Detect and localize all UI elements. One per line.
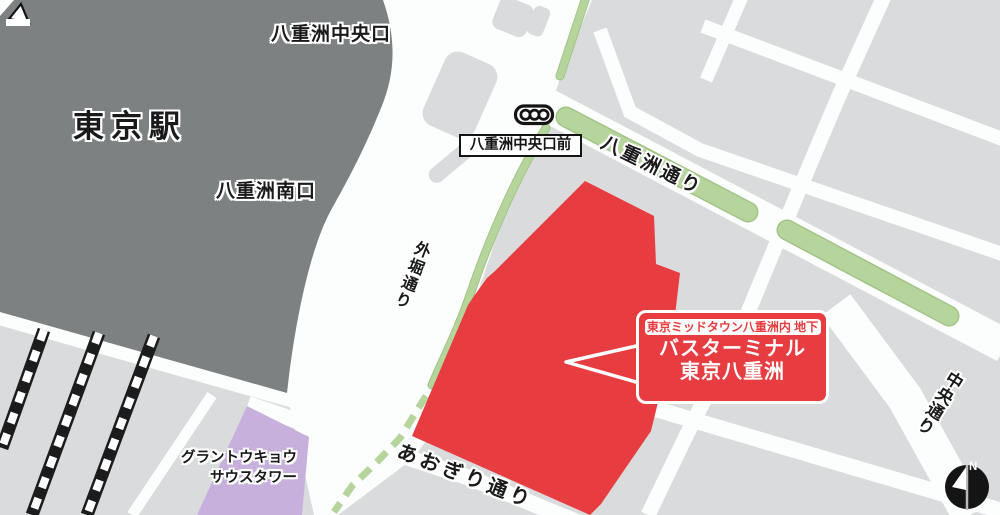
compass-north-label: N <box>969 461 977 473</box>
callout-location-badge: 東京ミッドタウン八重洲内 地下 <box>645 319 821 335</box>
gran-tokyo-line2: サウスタワー <box>147 468 297 488</box>
gran-tokyo-south-tower-label: グラントウキョウ サウスタワー <box>147 448 297 488</box>
bus-stop-sign: 八重洲中央口前 <box>459 134 582 157</box>
traffic-light-icon <box>516 106 553 124</box>
yaesu-south-exit-label: 八重洲南口 <box>216 176 316 203</box>
station-name-label: 東京駅 <box>73 101 187 146</box>
gran-tokyo-line1: グラントウキョウ <box>147 448 297 468</box>
callout-title-line2: 東京八重洲 <box>639 361 826 384</box>
map-canvas <box>0 0 1000 515</box>
bus-terminal-callout: 東京ミッドタウン八重洲内 地下 バスターミナル 東京八重洲 <box>636 310 829 404</box>
callout-title-line1: バスターミナル <box>639 338 826 361</box>
yaesu-central-exit-label: 八重洲中央口 <box>271 19 391 46</box>
sign-pointer <box>0 0 34 26</box>
area-map: 東京駅 八重洲中央口 八重洲南口 八重洲通り 外堀通り あおぎり通り 中央通り … <box>0 0 1000 515</box>
